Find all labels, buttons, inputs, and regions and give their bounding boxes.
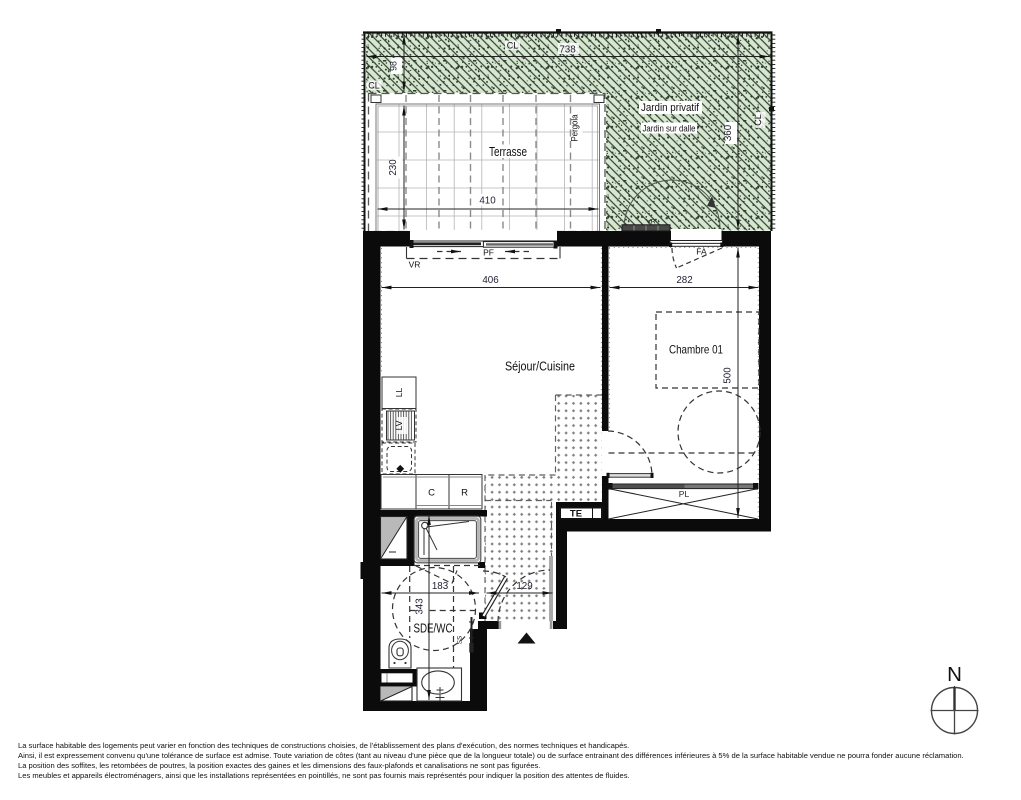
svg-text:La position des soffites, les: La position des soffites, les retombées …	[18, 761, 540, 770]
svg-text:La surface habitable des logem: La surface habitable des logements peut …	[18, 741, 629, 750]
svg-text:VR: VR	[409, 260, 421, 270]
svg-text:Terrasse: Terrasse	[489, 144, 527, 159]
svg-text:VR: VR	[646, 219, 656, 226]
svg-text:CL: CL	[753, 114, 763, 126]
svg-text:C: C	[428, 488, 435, 499]
svg-text:406: 406	[482, 275, 499, 286]
svg-text:TE: TE	[570, 509, 582, 520]
svg-text:CL: CL	[368, 81, 380, 91]
svg-text:LV: LV	[394, 420, 404, 430]
svg-text:282: 282	[676, 275, 692, 286]
svg-text:Séjour/Cuisine: Séjour/Cuisine	[505, 360, 575, 374]
svg-text:360: 360	[723, 124, 734, 141]
svg-text:PF: PF	[483, 248, 494, 258]
svg-text:R: R	[461, 488, 468, 499]
svg-text:738: 738	[559, 45, 576, 56]
svg-text:CL: CL	[507, 41, 519, 51]
svg-text:Jardin privatif: Jardin privatif	[641, 102, 700, 114]
svg-text:Ainsi, il est expressement con: Ainsi, il est expressement convenu qu'un…	[18, 751, 964, 760]
svg-text:LL: LL	[394, 388, 404, 398]
svg-text:500: 500	[723, 367, 734, 384]
svg-text:230: 230	[388, 159, 399, 176]
svg-text:FA: FA	[696, 247, 707, 257]
svg-text:Jardin sur dalle: Jardin sur dalle	[643, 124, 696, 134]
svg-text:PL: PL	[679, 489, 690, 499]
svg-text:Pergola: Pergola	[570, 114, 580, 142]
svg-text:SS: SS	[457, 635, 464, 644]
svg-text:Chambre 01: Chambre 01	[669, 343, 723, 357]
svg-text:343: 343	[415, 598, 426, 615]
svg-text:410: 410	[479, 196, 496, 207]
svg-text:129: 129	[516, 581, 532, 592]
svg-text:N: N	[947, 663, 962, 686]
svg-text:Les meubles et appareils élect: Les meubles et appareils électroménagers…	[18, 771, 630, 780]
svg-text:183: 183	[432, 581, 449, 592]
svg-text:SDE/WC: SDE/WC	[414, 622, 453, 636]
svg-text:98: 98	[389, 61, 399, 71]
